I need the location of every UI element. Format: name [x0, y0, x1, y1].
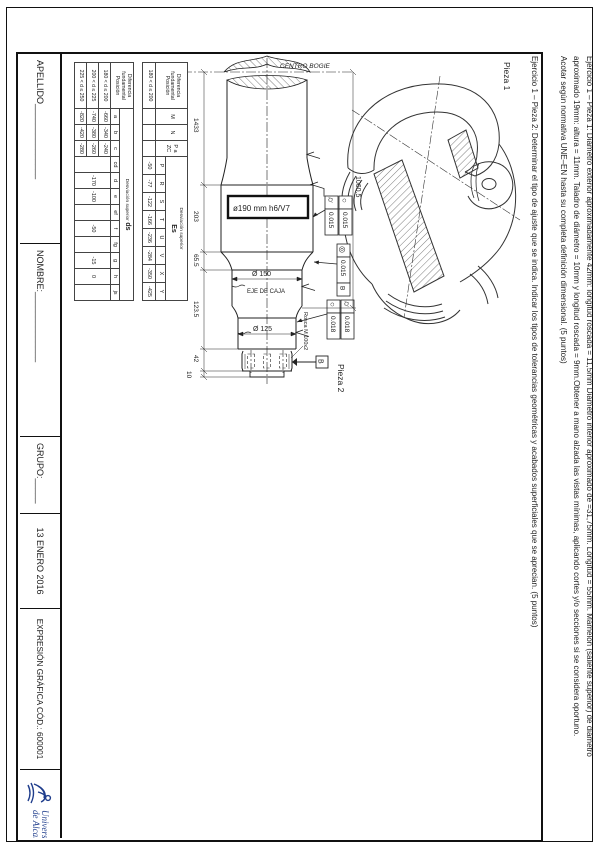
svg-text:0.015: 0.015: [341, 212, 348, 229]
thread-note: Rosca M 100x2: [302, 312, 308, 350]
svg-text:0.018: 0.018: [343, 316, 350, 333]
coaxiality-icon: ◎: [338, 246, 347, 253]
svg-text:1433: 1433: [192, 118, 199, 133]
d125-label: Ø 125: [253, 326, 272, 333]
svg-text:ø190 mm h6/V7: ø190 mm h6/V7: [233, 204, 290, 213]
exam-date: 13 ENERO 2016: [20, 514, 60, 609]
eje-de-caja-label: EJE DE CAJA: [247, 289, 285, 295]
svg-text:B: B: [339, 286, 346, 290]
university-emblem-icon: [26, 780, 54, 806]
svg-text:0.015: 0.015: [327, 212, 334, 229]
svg-text:0.018: 0.018: [329, 316, 336, 333]
pieza2-label: Pieza 2: [336, 364, 346, 393]
svg-text:123.5: 123.5: [192, 301, 199, 318]
title-block: APELLIDO_______________ NOMBRE:_________…: [20, 54, 62, 838]
university-logo: Universidad de Alcalá: [26, 776, 54, 838]
svg-text:0.015: 0.015: [339, 260, 346, 277]
svg-text:○: ○: [328, 302, 337, 307]
cylindricity-icon: ⌭: [326, 197, 335, 203]
svg-text:B: B: [317, 359, 324, 364]
grupo-field: GRUPO:_____: [20, 437, 60, 514]
exam-sheet-scan: Ejercicio 1 – Pieza 1: Diámetro exterior…: [0, 0, 600, 848]
nombre-field: NOMBRE:______________: [20, 244, 60, 437]
table-ds-deviations: Diferencia fundamentalPosición Desviació…: [74, 62, 134, 301]
apellido-field: APELLIDO_______________: [20, 54, 60, 244]
fit-callout: ø190 mm h6/V7: [228, 196, 308, 218]
svg-text:1060.5: 1060.5: [354, 176, 361, 198]
circularity-icon: ○: [340, 198, 349, 203]
centro-bogie-label: CENTRO BOGIE: [280, 63, 331, 70]
landscape-sheet: Ejercicio 1 – Pieza 1: Diámetro exterior…: [0, 0, 600, 848]
svg-text:65.5: 65.5: [192, 254, 199, 267]
table-es-deviations: Diferencia fundamentalPosición M N P a Z…: [142, 62, 188, 301]
svg-text:203: 203: [192, 211, 199, 222]
svg-text:10: 10: [185, 371, 192, 379]
d150-label: Ø 150: [252, 271, 271, 278]
svg-text:⌭: ⌭: [342, 301, 351, 307]
svg-text:42: 42: [192, 355, 199, 363]
pieza1-isometric-view: [342, 76, 520, 324]
course-code: EXPRESIÓN GRÁFICA CÓD.: 600001: [20, 609, 60, 770]
